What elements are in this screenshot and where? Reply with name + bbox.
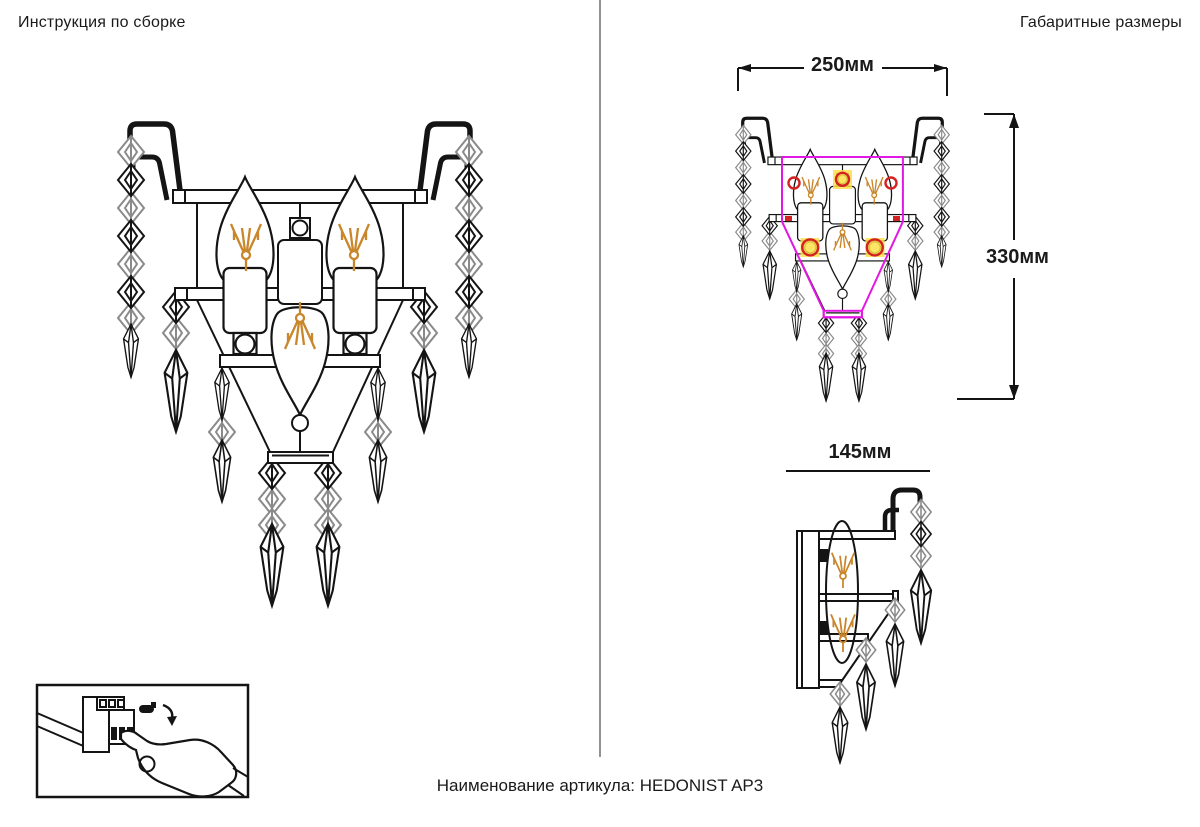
socket-center: [278, 240, 322, 304]
top-mounting-bar: [173, 190, 427, 203]
socket-left: [224, 268, 267, 354]
socket-right: [334, 268, 377, 354]
height-dimension-label: 330мм: [986, 246, 1049, 269]
assembly-title: Инструкция по сборке: [18, 14, 186, 32]
candle-bulb-center: [271, 307, 328, 415]
depth-dimension-label: 145мм: [795, 441, 925, 464]
article-name: Наименование артикула: HEDONIST AP3: [0, 776, 1200, 796]
width-dimension-label: 250мм: [776, 54, 909, 77]
bottom-plate: [268, 452, 333, 463]
sconce-side-view: [797, 490, 931, 763]
socket-side-upper: [819, 549, 828, 562]
center-bulb-cap: [292, 415, 308, 431]
socket-side-lower: [819, 621, 828, 634]
article-label: Наименование артикула:: [437, 776, 635, 795]
sconce-front-view: [118, 124, 482, 606]
sconce-front-view-small: [736, 118, 950, 401]
dimensions-title: Габаритные размеры: [1020, 14, 1182, 32]
technical-drawing: [0, 0, 1200, 827]
filament-side-upper: [832, 553, 855, 588]
assembly-instruction-sheet: Инструкция по сборке Габаритные размеры …: [0, 0, 1200, 827]
article-value: HEDONIST AP3: [640, 776, 763, 795]
back-plate: [797, 531, 819, 688]
top-arm: [819, 531, 895, 539]
